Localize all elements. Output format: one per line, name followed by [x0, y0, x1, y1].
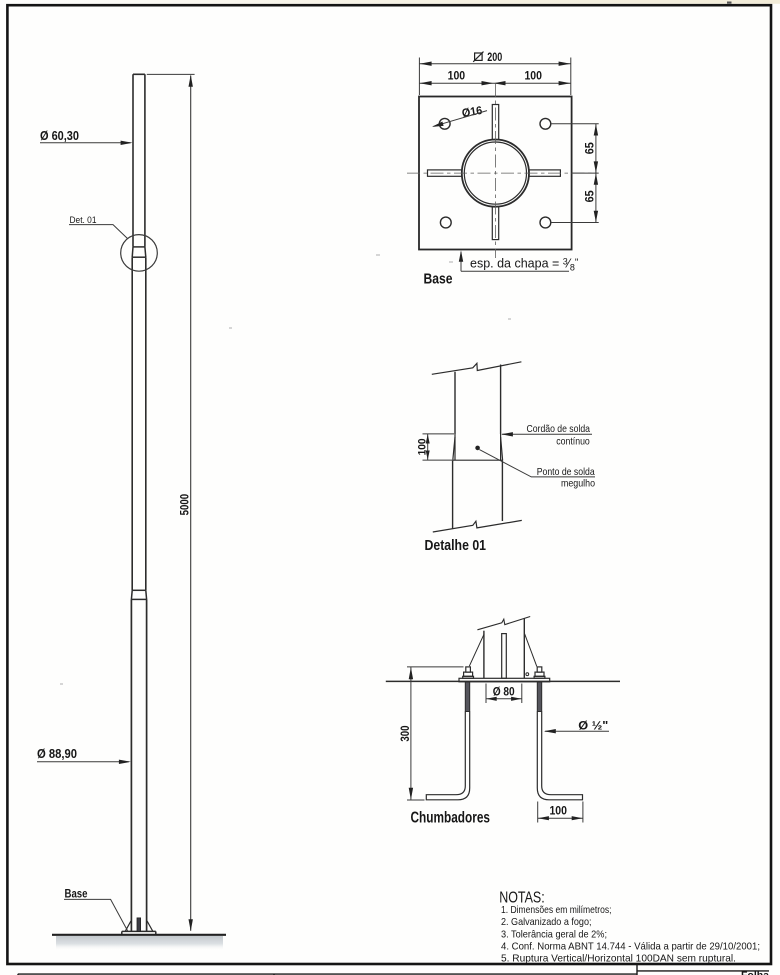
svg-text:4. Conf. Norma ABNT 14.744 - V: 4. Conf. Norma ABNT 14.744 - Válida a pa… — [501, 941, 760, 953]
svg-text:contínuo: contínuo — [556, 435, 590, 447]
svg-text:Ponto de solda: Ponto de solda — [537, 466, 595, 478]
svg-text:5000: 5000 — [178, 494, 192, 516]
svg-text:100: 100 — [416, 438, 428, 455]
svg-text:Ø 88,90: Ø 88,90 — [37, 747, 77, 761]
svg-text:65: 65 — [584, 190, 596, 203]
svg-text:5. Ruptura Vertical/Horizontal: 5. Ruptura Vertical/Horizontal 100DAN se… — [501, 953, 736, 965]
svg-text:300: 300 — [400, 726, 412, 742]
svg-text:Base: Base — [424, 272, 453, 288]
svg-text:Base: Base — [65, 887, 88, 901]
svg-text:Ø 80: Ø 80 — [493, 687, 515, 699]
svg-text:Chumbadores: Chumbadores — [411, 810, 491, 827]
svg-text:100: 100 — [524, 71, 542, 83]
svg-text:esp. da chapa = 3⁄8": esp. da chapa = 3⁄8" — [470, 257, 579, 273]
svg-text:100: 100 — [448, 71, 466, 83]
svg-text:200: 200 — [487, 52, 502, 64]
svg-text:Detalhe 01: Detalhe 01 — [425, 537, 487, 554]
svg-text:65: 65 — [584, 142, 596, 155]
svg-text:megulho: megulho — [561, 478, 595, 490]
svg-text:Ø ½": Ø ½" — [578, 719, 608, 733]
svg-text:Folha: Folha — [741, 970, 769, 975]
svg-text:Ø 60,30: Ø 60,30 — [40, 129, 79, 143]
svg-text:100: 100 — [549, 806, 567, 818]
svg-text:Cordão de solda: Cordão de solda — [527, 423, 591, 435]
svg-text:1. Dimensões em milímetros;: 1. Dimensões em milímetros; — [501, 904, 612, 916]
svg-text:3. Tolerância geral de 2%;: 3. Tolerância geral de 2%; — [501, 928, 607, 940]
svg-text:2. Galvanizado a fogo;: 2. Galvanizado a fogo; — [501, 916, 592, 928]
